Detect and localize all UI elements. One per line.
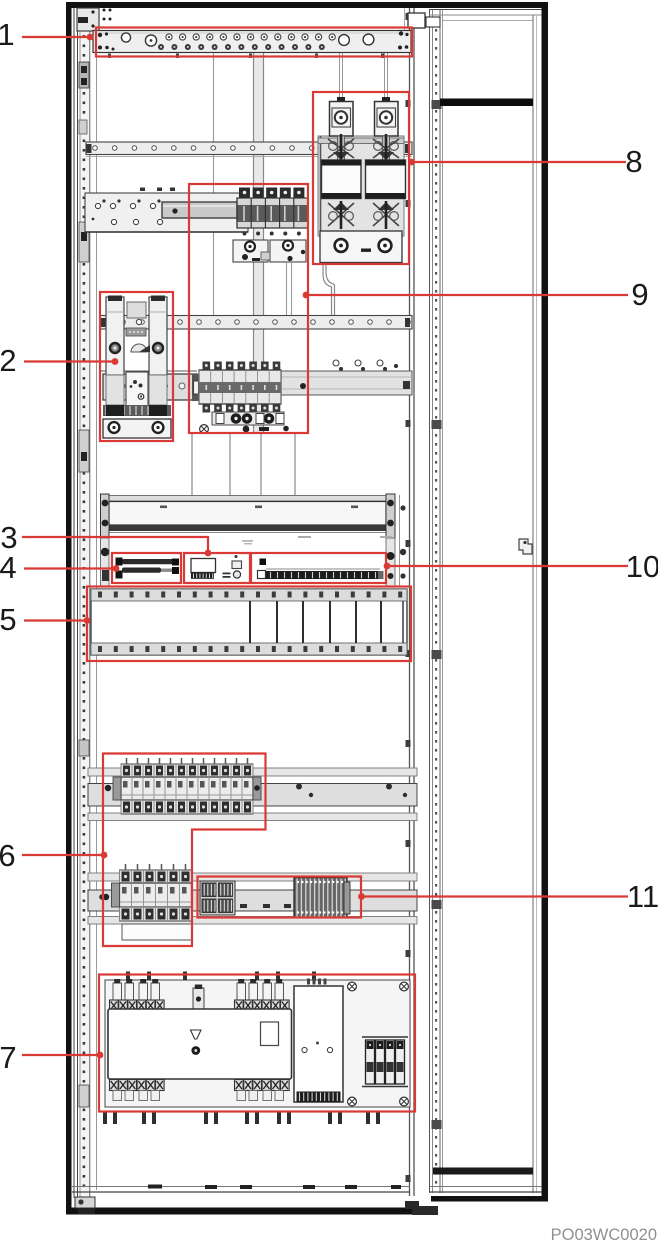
svg-text:7: 7: [0, 1040, 17, 1075]
svg-text:1: 1: [0, 17, 15, 52]
svg-text:11: 11: [627, 879, 658, 914]
svg-text:5: 5: [0, 602, 17, 637]
svg-text:6: 6: [0, 838, 16, 873]
svg-text:9: 9: [631, 277, 648, 312]
svg-text:2: 2: [0, 343, 17, 378]
svg-text:10: 10: [626, 549, 658, 584]
svg-text:PO03WC0020: PO03WC0020: [551, 1226, 657, 1244]
svg-text:8: 8: [625, 144, 642, 179]
svg-text:4: 4: [0, 550, 17, 585]
